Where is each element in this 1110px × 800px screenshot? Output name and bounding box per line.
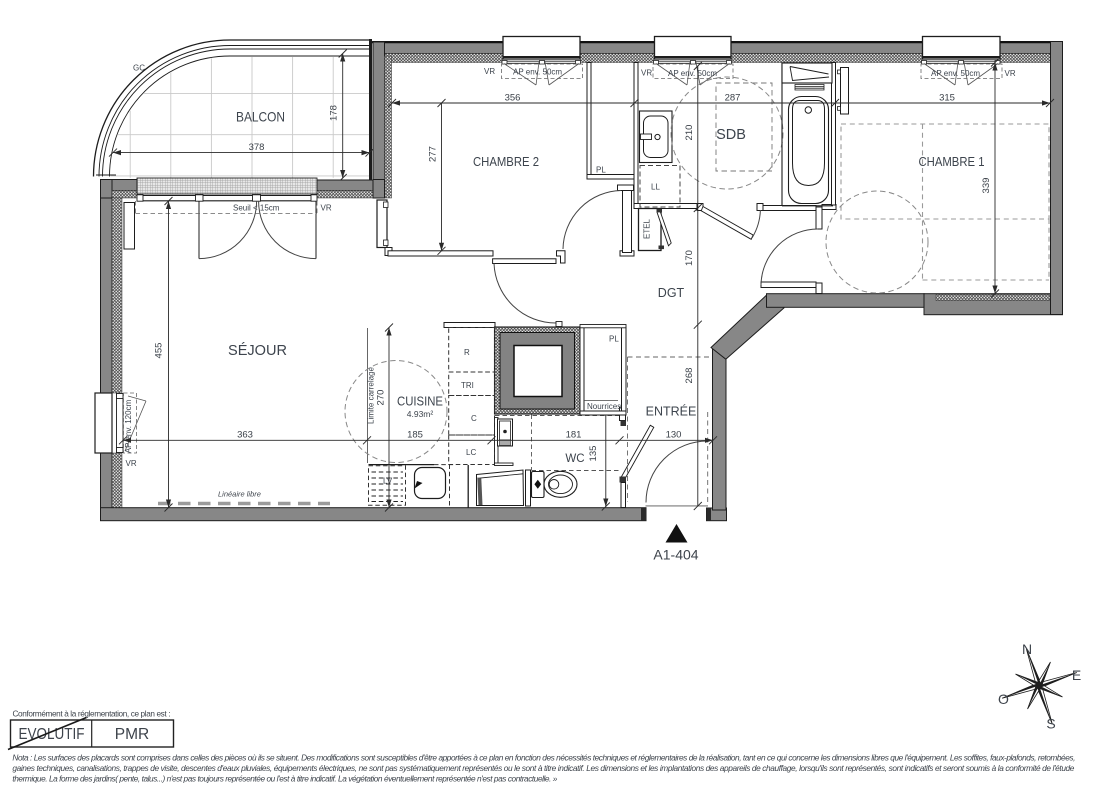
svg-text:210: 210 bbox=[684, 125, 695, 141]
svg-text:185: 185 bbox=[407, 430, 423, 441]
svg-text:ETEL: ETEL bbox=[643, 218, 652, 239]
svg-text:270: 270 bbox=[375, 390, 386, 406]
svg-text:N: N bbox=[1022, 641, 1032, 657]
svg-text:VR: VR bbox=[484, 67, 495, 76]
svg-text:135: 135 bbox=[588, 446, 599, 462]
svg-text:378: 378 bbox=[249, 142, 265, 153]
svg-text:SÉJOUR: SÉJOUR bbox=[228, 342, 287, 359]
svg-text:Limite carrelage: Limite carrelage bbox=[367, 366, 376, 423]
svg-text:CHAMBRE 1: CHAMBRE 1 bbox=[919, 154, 985, 169]
svg-text:S: S bbox=[1046, 716, 1055, 732]
svg-text:4.93m²: 4.93m² bbox=[407, 409, 434, 419]
svg-text:287: 287 bbox=[725, 93, 741, 104]
svg-text:CHAMBRE 2: CHAMBRE 2 bbox=[473, 154, 539, 169]
svg-text:TRI: TRI bbox=[461, 381, 474, 390]
svg-text:AP env. 50cm: AP env. 50cm bbox=[931, 69, 980, 78]
svg-text:ENTRÉE: ENTRÉE bbox=[646, 404, 697, 419]
svg-text:315: 315 bbox=[939, 93, 955, 104]
svg-text:SDB: SDB bbox=[716, 127, 746, 143]
svg-text:Nota : Les surfaces des placar: Nota : Les surfaces des placards sont co… bbox=[12, 753, 1075, 763]
svg-text:LV: LV bbox=[383, 477, 393, 486]
svg-text:339: 339 bbox=[981, 178, 992, 194]
svg-text:A1-404: A1-404 bbox=[653, 547, 698, 563]
svg-text:170: 170 bbox=[684, 250, 695, 266]
svg-text:BALCON: BALCON bbox=[236, 109, 285, 125]
svg-text:268: 268 bbox=[684, 368, 695, 384]
svg-text:thermique. La forme des jardin: thermique. La forme des jardins( pente, … bbox=[12, 773, 557, 783]
svg-text:181: 181 bbox=[566, 430, 582, 441]
svg-text:VR: VR bbox=[1005, 69, 1016, 78]
svg-text:WC: WC bbox=[565, 453, 584, 465]
svg-text:gaines techniques, canalisatio: gaines techniques, canalisations, trappe… bbox=[12, 763, 1074, 773]
svg-text:LL: LL bbox=[651, 183, 660, 192]
svg-text:356: 356 bbox=[505, 93, 521, 104]
svg-text:455: 455 bbox=[154, 343, 165, 359]
svg-text:VR: VR bbox=[641, 69, 652, 78]
svg-text:130: 130 bbox=[666, 430, 682, 441]
svg-text:LC: LC bbox=[466, 448, 476, 457]
svg-text:GC: GC bbox=[133, 64, 145, 73]
svg-text:277: 277 bbox=[428, 146, 439, 162]
svg-text:Linéaire libre: Linéaire libre bbox=[218, 490, 261, 499]
svg-text:R: R bbox=[464, 348, 470, 357]
svg-text:Nourrices: Nourrices bbox=[587, 402, 621, 411]
svg-text:AP env. 50cm: AP env. 50cm bbox=[668, 69, 717, 78]
svg-text:178: 178 bbox=[329, 105, 340, 121]
svg-text:E: E bbox=[1072, 667, 1081, 683]
svg-text:VR: VR bbox=[321, 204, 332, 213]
svg-text:AP env. 50cm: AP env. 50cm bbox=[513, 68, 562, 77]
svg-text:Seuil < 15cm: Seuil < 15cm bbox=[233, 204, 280, 213]
svg-text:AP env. 120cm: AP env. 120cm bbox=[124, 399, 133, 453]
svg-text:363: 363 bbox=[237, 430, 253, 441]
svg-text:C: C bbox=[471, 414, 477, 423]
svg-text:DGT: DGT bbox=[658, 286, 685, 300]
svg-text:PL: PL bbox=[609, 335, 619, 344]
svg-text:Conformément à la réglementati: Conformément à la réglementation, ce pla… bbox=[13, 710, 171, 719]
svg-text:PMR: PMR bbox=[115, 726, 149, 743]
svg-text:O: O bbox=[998, 691, 1009, 707]
svg-text:PL: PL bbox=[596, 166, 606, 175]
svg-text:VR: VR bbox=[126, 459, 137, 468]
svg-text:CUISINE: CUISINE bbox=[397, 395, 443, 409]
